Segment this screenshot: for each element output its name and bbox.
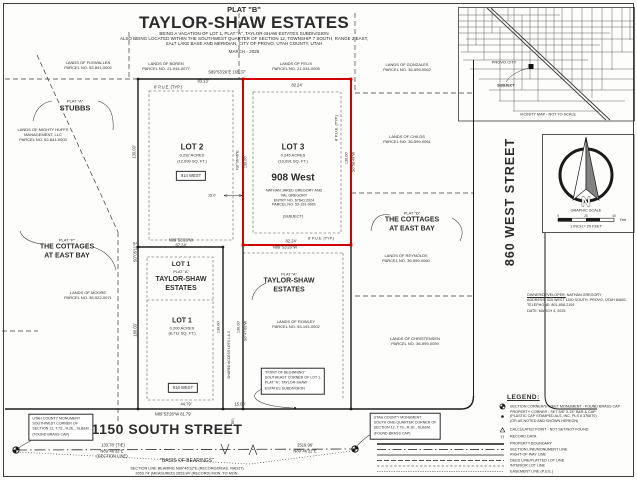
dimension-label: 83.13' <box>197 78 208 83</box>
plat-a-stubbs: PLAT "A"STUBBS <box>60 98 91 113</box>
point-of-beginning-note-line: ESTATES SUBDIVISION <box>265 386 321 391</box>
plat-p-cottages: PLAT "P"THE COTTAGESAT EAST BAY <box>40 237 94 260</box>
plat-a-center-label-line: ESTATES <box>264 286 315 295</box>
dimension-label: N0°06'46"E <box>236 150 241 169</box>
north-letter: N <box>581 194 590 209</box>
lot1-card: LOT 10.200 ACRES(8,711 SQ. FT.) <box>168 316 195 335</box>
lot1-plat-a-label-line: LOT 1 <box>156 261 207 269</box>
address-916-line: 916 WEST <box>173 385 193 391</box>
lot3-card-line: LOT 3 <box>278 143 308 153</box>
dimension-label: "BASIS OF BEARINGS" <box>160 458 214 465</box>
legend-dot-symbol <box>501 415 504 418</box>
parcel-mighty-huffs: LANDS OF MIGHTY HUFFSMANAGEMENT, LLCPARC… <box>17 127 68 143</box>
vicinity-map <box>459 8 635 122</box>
scale-ratio: 1 INCH = 20 FEET <box>570 225 602 230</box>
dimension-label: 44.79' <box>180 401 191 406</box>
scale-tick-40: 40 <box>612 213 616 217</box>
dimension-label: (SECTION LINE) <box>96 453 127 458</box>
dimension-label: SHARED ACCESS LOTS 1 & 3 <box>227 331 231 379</box>
legend-item-label: (OR AS NOTED AND SHOWN HEREON) <box>510 419 597 424</box>
legend-item-label: INTERIOR LOT LINE <box>510 464 545 469</box>
dimension-label: 133.78' (TIE) <box>101 442 125 447</box>
legend-item: EASEMENT LINE (P.U.E.) <box>510 469 553 474</box>
parcel-reynolds: LANDS OF REYNOLDSPARCEL NO. 36-599-0060 <box>382 253 430 263</box>
lot3-subject: (SUBJECT) <box>283 213 303 218</box>
legend-item-label: SECTION LINE/MONUMENT LINE <box>510 447 568 452</box>
plat-a-center-label-line: TAYLOR-SHAW <box>264 276 315 285</box>
vicinity-city-label: PROVO CITY <box>492 59 517 64</box>
lot3-card-line: 0.245 ACRES <box>278 153 308 158</box>
legend-item: SECTION LINE/MONUMENT LINE <box>510 447 568 452</box>
address-914-line: 914 WEST <box>181 172 201 178</box>
dimension-label: 130.00' <box>344 152 349 164</box>
plat-a-center-label: PLAT "A"TAYLOR-SHAWESTATES <box>264 271 315 294</box>
lot2-card-line: (12,699 SQ. FT.) <box>177 158 207 163</box>
monument-quarter-note-line: SECTION 12, T.7S., R.2E., SLB&M. <box>374 426 437 431</box>
scale-tick-0: 0 <box>557 213 559 217</box>
vicinity-subject-label: SUBJECT <box>497 83 515 88</box>
parcel-rowley-line: PARCEL NO. 53-191-0002 <box>272 324 320 329</box>
parcel-rowley: LANDS OF ROWLEYPARCEL NO. 53-191-0002 <box>272 318 320 328</box>
parcel-childs-line: PARCEL NO. 36-599-0061 <box>383 139 431 144</box>
lot3-owner-line: PARCEL NO. 53-191-0001 <box>266 203 322 208</box>
vicinity-caption: VICINITY MAP - NOT TO SCALE <box>520 112 576 117</box>
legend-triangle-symbol <box>500 428 505 432</box>
parcel-boren: LANDS OF BORENPARCEL NO. 21-044-0077 <box>142 60 190 70</box>
parcel-reynolds-line: PARCEL NO. 36-599-0060 <box>382 258 430 263</box>
legend-item: SECTION CORNER/STREET MONUMENT - FOUND B… <box>510 404 620 409</box>
legend-item: RIGHT-OF-WAY LINE <box>510 453 546 458</box>
parcel-felix-line: PARCEL NO. 21-044-0005 <box>272 66 320 71</box>
legend-item-label: SECTION CORNER/STREET MONUMENT - FOUND B… <box>510 404 620 409</box>
lot1-plat-a-label: LOT 1PLAT "A"TAYLOR-SHAWESTATES <box>156 261 207 293</box>
lot3-address: 908 West <box>271 172 314 185</box>
parcel-gonzales-line: PARCEL NO. 36-599-0062 <box>383 67 431 72</box>
monument-icon-quarter <box>352 446 358 452</box>
lot2-card: LOT 20.292 ACRES(12,699 SQ. FT.) <box>177 143 207 164</box>
plat-d-cottages-line: THE COTTAGES <box>385 216 439 225</box>
street-1150-south: 1150 SOUTH STREET <box>92 420 243 438</box>
subject-leader <box>506 68 528 82</box>
dimension-label: N89°46'32"E <box>293 448 316 453</box>
dimension-label: S0°47'00"W <box>244 321 249 341</box>
plat-p-cottages-line: AT EAST BAY <box>40 252 94 261</box>
owner-name: NATHAN GREGORY <box>567 293 602 297</box>
plat-date: MARCH - 2025 <box>229 49 260 55</box>
parcel-moore-line: PARCEL NO. 36-522-0071 <box>64 295 112 300</box>
dimension-label: 130.00' <box>217 321 222 333</box>
point-of-beginning-marker <box>294 407 296 409</box>
lot2-card-line: LOT 2 <box>177 143 207 153</box>
lot3-subject-line: (SUBJECT) <box>283 213 303 218</box>
dimension-label: 82.24' <box>291 82 302 87</box>
parcel-felix: LANDS OF FELIXPARCEL NO. 21-044-0005 <box>272 60 320 70</box>
legend-parens-symbol: ( ) <box>501 435 505 440</box>
parcel-boren-line: PARCEL NO. 21-044-0077 <box>142 66 190 71</box>
plat-sheet: N <box>0 0 637 480</box>
plat-p-cottages-line: THE COTTAGES <box>40 243 94 252</box>
dimension-label: 8' P.U.E. (TYP.) <box>335 115 340 141</box>
lot1-card-line: (8,711 SQ. FT.) <box>168 331 195 336</box>
owner-date: DATE: MARCH 4, 2025 <box>527 309 626 314</box>
monument-sw-note: UTAH COUNTY MONUMENTSOUTHWEST CORNER OFS… <box>28 414 93 441</box>
lot3-owner: NATHAN JARED GREGORY ANDVAL GREGORYENTRY… <box>266 188 322 207</box>
lot2-card-line: 0.292 ACRES <box>177 153 207 158</box>
parcel-gonzales: LANDS OF GONZALESPARCEL NO. 36-599-0062 <box>383 61 431 71</box>
subject-parcel-marker <box>529 64 534 69</box>
parcel-christensen: LANDS OF CHRISTENSENPARCEL NO. 36-599-00… <box>390 336 440 346</box>
graphic-scale-bar <box>558 218 614 221</box>
lot3-card: LOT 30.245 ACRES(10,691 SQ. FT.) <box>278 143 308 164</box>
address-914: 914 WEST <box>176 170 206 180</box>
legend-item-label: CALCULATED POINT - NOT SET/NOT FOUND <box>510 428 588 433</box>
dimension-label: S89°53'26"E 165.37' <box>208 69 245 74</box>
legend-item-label: PROPERTY BOUNDARY <box>510 442 552 447</box>
scale-unit: Feet <box>620 218 626 222</box>
lot3-address-line: 908 West <box>271 172 314 185</box>
subtitle-line-3: SALT LAKE BASE AND MERIDIAN, CITY OF PRO… <box>166 41 323 47</box>
parcel-flewallen-line: PARCEL NO. 52-841-0002 <box>64 65 112 70</box>
parcel-childs: LANDS OF CHILDSPARCEL NO. 36-599-0061 <box>383 134 431 144</box>
dimension-label: N89°53'26"W 81.79' <box>155 411 192 416</box>
dimension-label: 130.00' <box>244 156 249 168</box>
legend-item: CALCULATED POINT - NOT SET/NOT FOUND <box>510 428 588 433</box>
dimension-label: 67.24' <box>175 242 186 247</box>
monument-quarter-note: UTAH COUNTY MONUMENTSOUTH ONE-QUARTER CO… <box>370 413 441 440</box>
dimension-label: 2653.74' (MEASURED) 2653.84' (RECORD) MO… <box>135 471 238 476</box>
street-860-west: 860 WEST STREET <box>502 138 518 266</box>
legend-title: LEGEND: <box>507 393 540 402</box>
dimension-label: 8' P.U.E. (TYP.) <box>308 236 334 241</box>
dimension-label: 130.00' <box>131 145 136 158</box>
dimension-label: (TIE) <box>231 418 235 426</box>
legend-item: INTERIOR LOT LINE <box>510 464 545 469</box>
parcel-christensen-line: PARCEL NO. 36-599-0059 <box>390 341 440 346</box>
parcel-moore: LANDS OF MOOREPARCEL NO. 36-522-0071 <box>64 289 112 299</box>
scale-tick-20: 20 <box>584 213 588 217</box>
legend-item-label: RIGHT-OF-WAY LINE <box>510 453 546 458</box>
lot1-plat-a-label-line: TAYLOR-SHAW <box>156 275 207 284</box>
monument-sw-note-line: SECTION 12, T.7S., R.2E., SLB&M. <box>32 427 89 432</box>
legend-item: DEED LINE/PLATTED LOT LINE <box>510 458 564 463</box>
monument-sw-note-line: (FOUND BRASS CAP) <box>32 432 89 437</box>
parcel-flewallen: LANDS OF FLEWALLENPARCEL NO. 52-841-0002 <box>64 60 112 70</box>
legend-item-label: EASEMENT LINE (P.U.E.) <box>510 469 553 474</box>
owner-developer-block: OWNER/DEVELOPER: NATHAN GREGORY ADDRESS:… <box>527 293 626 314</box>
plat-d-cottages-line: AT EAST BAY <box>385 225 439 234</box>
legend-item-label: RECORD DATA <box>510 435 536 440</box>
dimension-label: 15.00' <box>234 401 245 406</box>
dimension-label: 15.0' <box>208 193 216 198</box>
dimension-label: 8' P.U.E. (TYP.) <box>154 84 182 89</box>
lot3-card-line: (10,691 SQ. FT.) <box>278 158 308 163</box>
dimension-label: 180.00' <box>132 323 137 336</box>
legend-item: RECORD DATA <box>510 435 536 440</box>
address-916: 916 WEST <box>168 383 198 393</box>
dimension-label: N89°53'26"W <box>273 244 297 249</box>
plat-a-stubbs-line: STUBBS <box>60 103 91 113</box>
legend-item-label: DEED LINE/PLATTED LOT LINE <box>510 458 564 463</box>
plat-d-cottages: PLAT "D"THE COTTAGESAT EAST BAY <box>385 210 439 233</box>
lot1-plat-a-label-line: ESTATES <box>156 284 207 293</box>
dimension-label: S0°05'11"E <box>132 242 137 262</box>
legend-item: PROPERTY BOUNDARY <box>510 442 552 447</box>
lot1-card-line: LOT 1 <box>168 316 195 325</box>
dimension-label: 130.00' <box>237 321 242 333</box>
owner-label: OWNER/DEVELOPER: <box>527 293 566 297</box>
point-of-beginning-note: "POINT OF BEGINNING"SOUTHEAST CORNER OF … <box>261 368 325 395</box>
dimension-label: 2519.96' <box>297 442 313 447</box>
legend-item: PROPERTY CORNER - SET 5/8" X 24" BAR & C… <box>510 409 597 423</box>
dimension-label: S0°58'49"W <box>352 152 357 172</box>
parcel-mighty-huffs-line: PARCEL NO. 52-841-0003 <box>17 138 68 143</box>
monument-icon-sw <box>13 447 19 453</box>
legend-item-label: (PLASTIC CAP STAMPED ALS, INC. PLS # 376… <box>510 414 597 419</box>
monument-quarter-note-line: (FOUND BRASS CAP) <box>374 431 437 436</box>
